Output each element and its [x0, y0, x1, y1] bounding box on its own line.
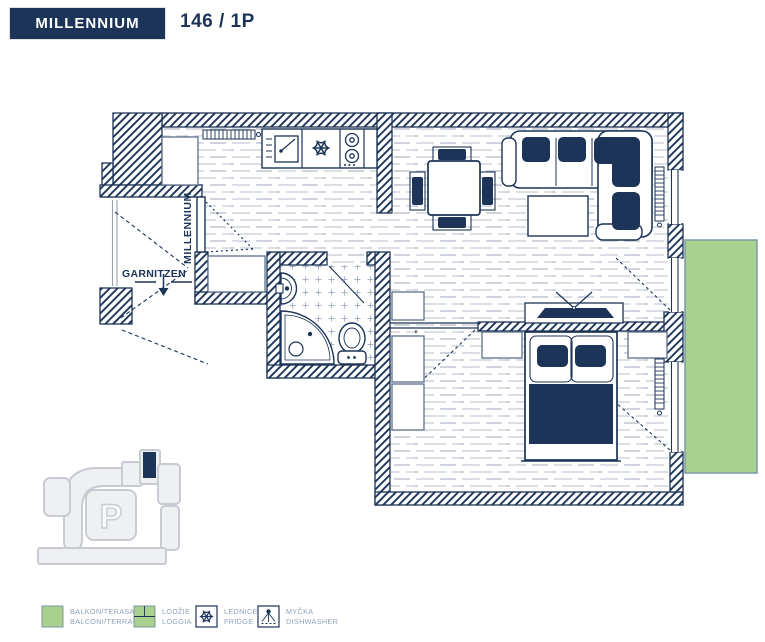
wall-niche-bottom: [195, 292, 268, 304]
floorplan-page: MILLENNIUM 146 / 1P: [0, 0, 765, 642]
entrance-door: [197, 197, 205, 252]
corridor-label: GARNITZEN: [122, 268, 186, 280]
bedroom-wardrobe-2: [392, 384, 424, 430]
legend-label: BALCONI/TERRACE: [70, 617, 143, 626]
legend-item-dishwasher: MYČKA DISHWASHER: [258, 606, 338, 627]
balcony-terrace: [685, 240, 757, 473]
legend: BALKON/TERASA BALCONI/TERRACE LODŽIE LOG…: [42, 606, 338, 627]
tv-icon: [537, 308, 614, 318]
pillow-right: [575, 345, 606, 367]
coffee-table: [528, 196, 588, 236]
hall-niche-cabinet: [208, 256, 265, 292]
legend-item-loggia: LODŽIE LOGGIA: [134, 606, 192, 627]
wall-right-a: [668, 113, 683, 170]
living-closet: [392, 292, 424, 320]
legend-label: FRIDGE: [224, 617, 253, 626]
dining-table: [428, 161, 480, 215]
balcony-swatch: [42, 606, 63, 627]
wall-kitchen-divider: [377, 113, 392, 213]
legend-label: DISHWASHER: [286, 617, 338, 626]
wall-topleft-block: [113, 113, 162, 185]
wall-top: [162, 113, 683, 127]
nightstand-right: [628, 332, 667, 358]
wall-right-b: [668, 224, 683, 258]
wall-bath-top-a: [280, 252, 327, 265]
nightstand-left: [482, 332, 522, 358]
floor-plan: GARNITZEN MILLENNIUM: [0, 0, 765, 642]
pillow-left: [537, 345, 568, 367]
legend-label: LEDNICE: [224, 607, 258, 616]
wall-bath-left: [267, 252, 280, 378]
wall-right-d: [670, 452, 683, 492]
radiator-kitchen: [203, 130, 261, 139]
exterior-area: [195, 378, 377, 508]
wall-bath-bottom: [267, 365, 390, 378]
apartment-location-marker: [143, 452, 156, 478]
kitchen-corner-cabinet: [162, 137, 198, 185]
wall-bedroom-left: [375, 252, 390, 505]
bedroom-wardrobe-1: [392, 336, 424, 382]
legend-label: LOGGIA: [162, 617, 192, 626]
entrance-label: MILLENNIUM: [182, 192, 194, 264]
double-bed: [521, 332, 621, 461]
toilet: [338, 323, 366, 364]
radiator-bedroom: [655, 359, 664, 415]
parking-label: P: [100, 498, 123, 536]
legend-item-fridge: LEDNICE FRIDGE: [196, 606, 258, 627]
wall-bottom: [375, 492, 683, 505]
radiator-living: [655, 167, 664, 227]
legend-item-balcony: BALKON/TERASA BALCONI/TERRACE: [42, 606, 143, 627]
legend-label: LODŽIE: [162, 607, 190, 616]
legend-label: BALKON/TERASA: [70, 607, 135, 616]
bed-blanket: [529, 384, 613, 444]
building-site-map: P: [38, 450, 180, 564]
wall-pier: [100, 288, 132, 324]
legend-label: MYČKA: [286, 607, 313, 616]
